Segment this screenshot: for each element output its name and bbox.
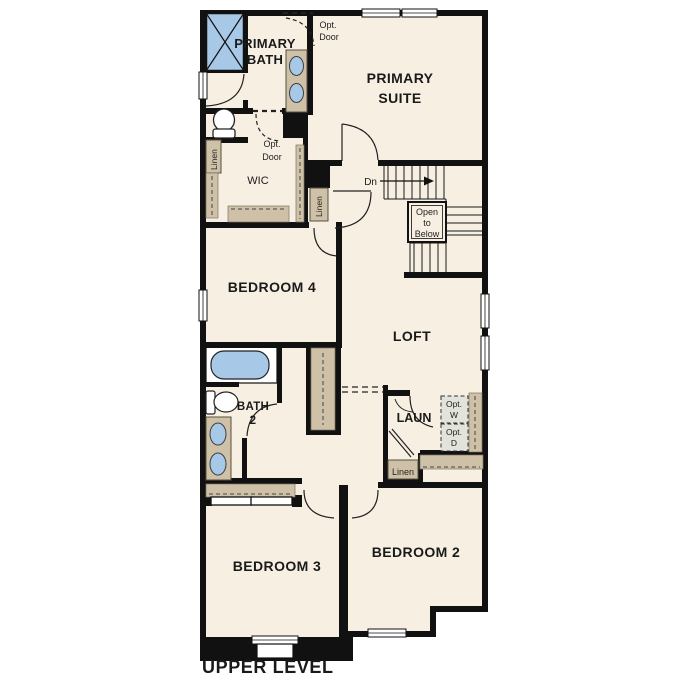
opt-dryer-label: Opt. (446, 427, 462, 437)
wall-toilet-jamb (243, 100, 248, 114)
toilet-tank (213, 129, 235, 138)
wall-suite-west (307, 10, 313, 115)
opt-door-upper-label: Door (319, 32, 339, 42)
bath2-label: BATH (237, 401, 269, 413)
wall-suite-south-e (378, 160, 488, 166)
bathtub (211, 351, 269, 379)
loft-label: LOFT (393, 328, 431, 344)
primary-suite-label: SUITE (378, 90, 421, 106)
opt-dryer-label: D (451, 438, 457, 448)
opt-door-wic-label: Opt. (263, 139, 280, 149)
opt-door-upper-label: Opt. (319, 20, 336, 30)
bedroom3-closet-shelf (206, 484, 295, 497)
toilet-icon (214, 392, 238, 412)
page-title: UPPER LEVEL (202, 657, 334, 677)
opt-washer-label: W (450, 410, 458, 420)
primary-bath-label: BATH (247, 52, 283, 67)
wall-closet-west (306, 345, 311, 435)
wall-wic-south (200, 222, 309, 228)
linen-bath-label: Linen (209, 149, 219, 170)
wall-block-hall (308, 162, 330, 188)
closet-door-panel (211, 497, 252, 505)
wall-closet-east (335, 345, 341, 435)
wall-bedroom4-east (336, 222, 342, 348)
opt-washer-label: Opt. (446, 399, 462, 409)
wall-notch-h (430, 606, 488, 612)
floor-plan-page: PRIMARY BATH PRIMARY SUITE Opt. Door Opt… (0, 0, 687, 687)
primary-suite-label: PRIMARY (367, 70, 434, 86)
bedroom4-label: BEDROOM 4 (228, 279, 316, 295)
linen-hall-label: Linen (314, 196, 324, 217)
stair-down-label: Dn (364, 177, 377, 188)
wall-bedroom-divider (339, 485, 348, 641)
bedroom2-label: BEDROOM 2 (372, 544, 460, 560)
wall-bath2-east-upper (277, 345, 282, 403)
toilet-icon (214, 109, 235, 131)
sink-icon (290, 84, 304, 103)
wall-closet-bottom (306, 430, 341, 435)
wall-bedroom4-south (200, 342, 341, 348)
wic-label: WIC (247, 175, 268, 187)
closet-door-panel (251, 497, 292, 505)
laundry-label: LAUN (397, 411, 432, 425)
floor-plan-svg: PRIMARY BATH PRIMARY SUITE Opt. Door Opt… (0, 0, 687, 687)
wall-stairs-south (404, 272, 486, 278)
open-to-below-label: to (423, 218, 431, 228)
sink-icon (210, 423, 226, 445)
bedroom3-label: BEDROOM 3 (233, 558, 321, 574)
wall-tub-south (206, 382, 239, 387)
opt-door-wic-label: Door (262, 152, 282, 162)
sink-icon (210, 453, 226, 475)
bath2-label: 2 (250, 415, 257, 427)
open-to-below-label: Below (415, 229, 440, 239)
wall-left (200, 10, 206, 661)
primary-bath-label: PRIMARY (234, 36, 296, 51)
sink-icon (290, 57, 304, 76)
bedroom3-closet-doors (211, 497, 292, 505)
laundry-cabinet-east (469, 393, 482, 452)
wall-bath2-east-lower (242, 438, 247, 483)
wic-shelf-bottom (228, 206, 289, 222)
wall-bedroom2-north (378, 482, 484, 488)
wall-laundry-west (383, 390, 388, 484)
linen-laundry-label: Linen (392, 467, 414, 477)
open-to-below-label: Open (416, 207, 438, 217)
window-bay-seat (257, 644, 293, 658)
